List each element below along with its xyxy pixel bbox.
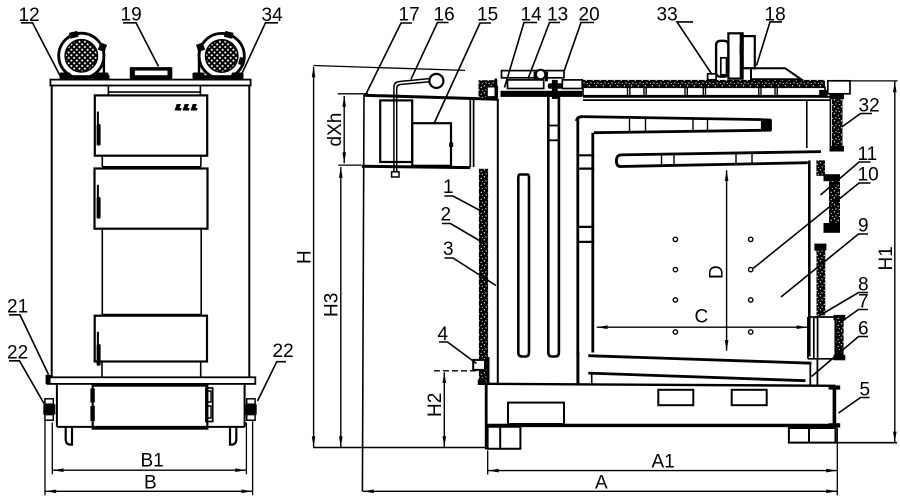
svg-text:B1: B1 — [141, 451, 164, 472]
svg-text:H3: H3 — [322, 293, 343, 317]
svg-text:33: 33 — [657, 5, 678, 26]
svg-text:H2: H2 — [425, 393, 446, 417]
svg-text:A: A — [595, 473, 608, 494]
svg-text:C: C — [695, 307, 709, 328]
svg-text:dXh: dXh — [325, 113, 346, 147]
svg-text:3: 3 — [443, 239, 454, 260]
svg-text:22: 22 — [273, 341, 294, 362]
svg-text:2: 2 — [441, 205, 452, 226]
svg-text:1: 1 — [443, 177, 454, 198]
svg-text:H1: H1 — [876, 246, 897, 270]
svg-text:A1: A1 — [652, 452, 675, 473]
svg-text:D: D — [707, 265, 728, 279]
svg-text:H: H — [295, 250, 316, 264]
svg-text:B: B — [144, 473, 157, 494]
